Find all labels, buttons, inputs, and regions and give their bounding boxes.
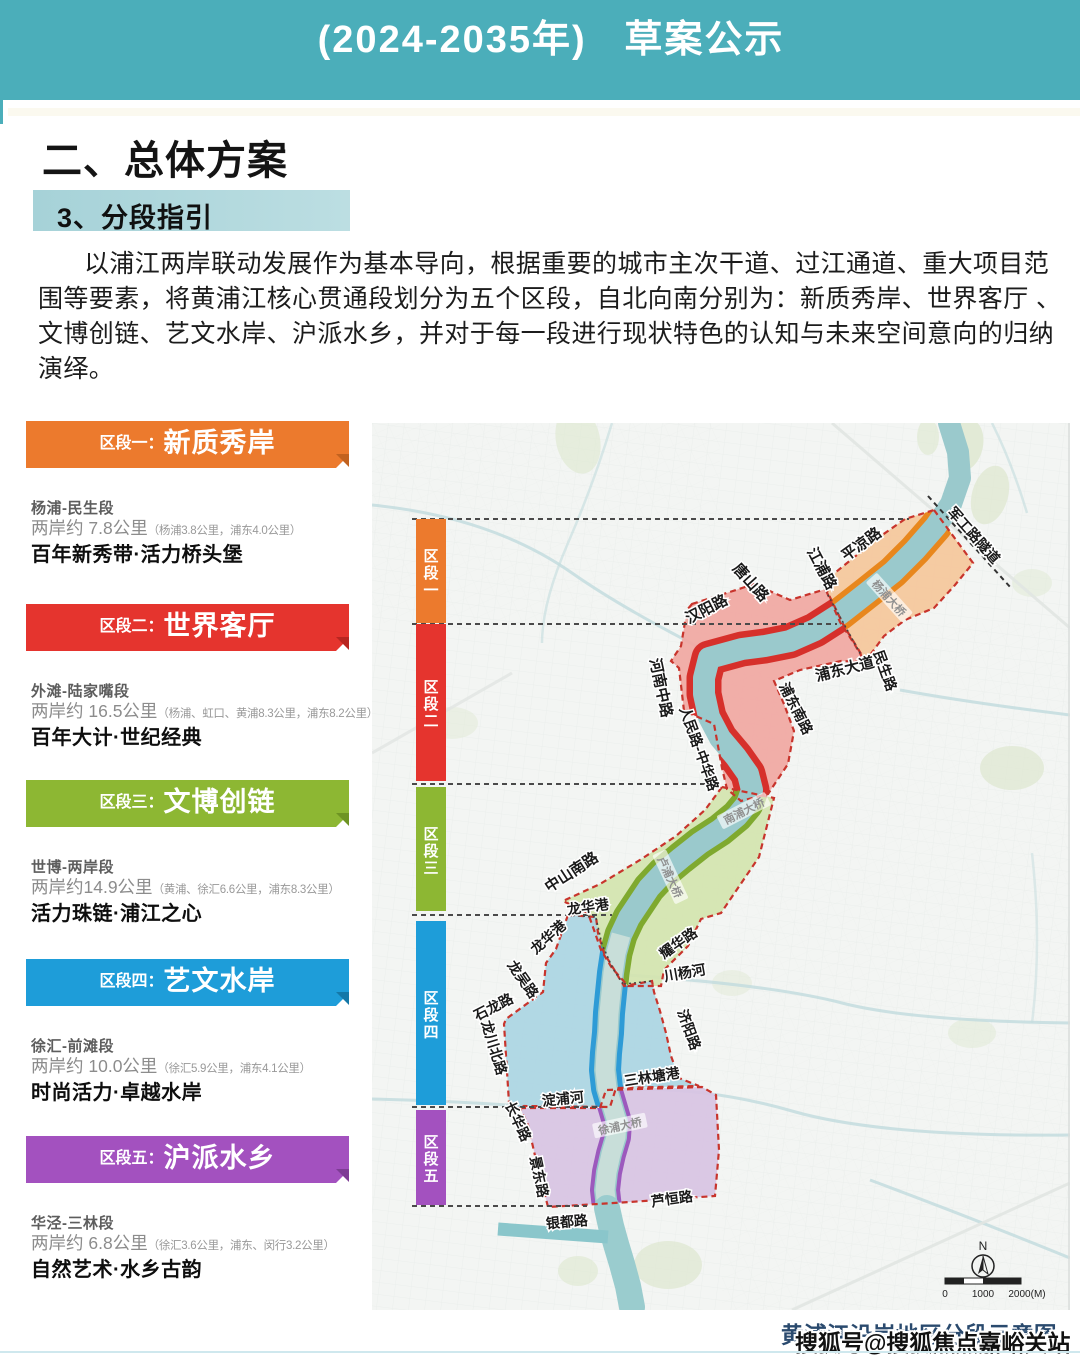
svg-text:1000: 1000 bbox=[972, 1289, 995, 1300]
svg-text:区段三: 区段三 bbox=[423, 826, 438, 877]
svg-text:0: 0 bbox=[942, 1289, 948, 1300]
svg-text:区段五: 区段五 bbox=[423, 1134, 438, 1185]
svg-text:区段一: 区段一 bbox=[423, 548, 438, 599]
svg-text:N: N bbox=[979, 1239, 988, 1253]
svg-text:区段四: 区段四 bbox=[423, 990, 438, 1041]
svg-text:区段二: 区段二 bbox=[423, 679, 438, 730]
svg-text:2000(M): 2000(M) bbox=[1008, 1289, 1045, 1300]
